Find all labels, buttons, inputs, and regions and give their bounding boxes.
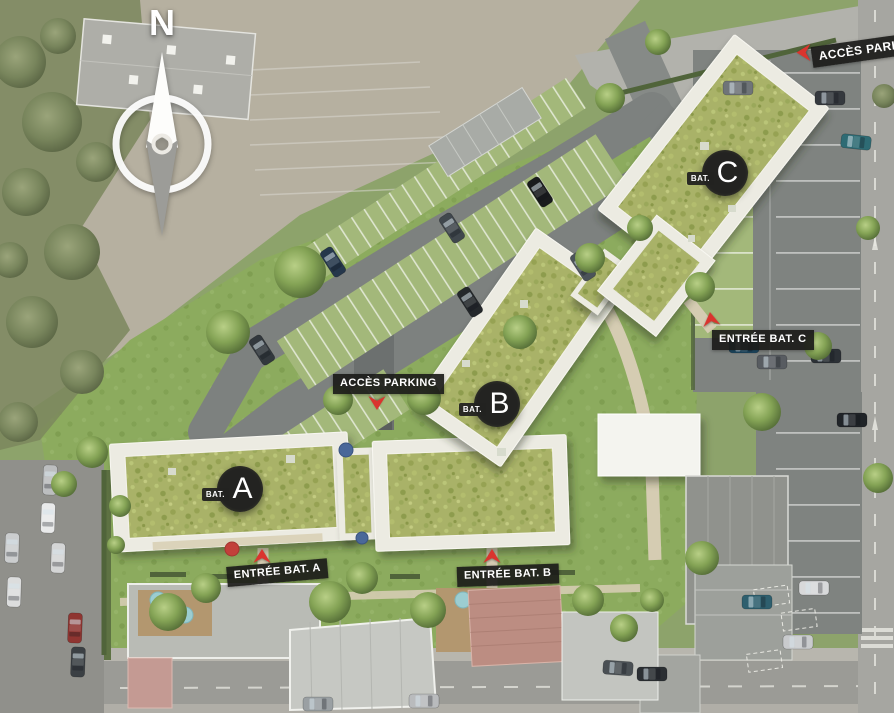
building-b-badge-letter: B [484,389,509,419]
building-a-badge-prefix: BAT. [202,488,229,501]
compass-rose-icon: N [110,6,214,238]
access-parking-label-center: ACCÈS PARKING [333,374,444,394]
building-b-badge: BAT. B [474,381,520,427]
building-c-badge-prefix: BAT. [687,172,714,185]
red-chevron-up-icon-entrance-b [483,549,501,564]
building-b-badge-prefix: BAT. [459,403,486,416]
building-c-badge: BAT. C [702,150,748,196]
entrance-building-b-label: ENTRÉE BAT. B [457,563,559,587]
building-a-badge: BAT. A [217,466,263,512]
red-chevron-up-icon-entrance-c [701,311,721,328]
red-chevron-down-icon [368,395,386,410]
compass-needle [110,6,214,238]
building-ab-link-roof [337,447,378,540]
entrance-building-c-label: ENTRÉE BAT. C [712,330,814,350]
red-chevron-left-icon [797,44,812,62]
red-chevron-up-icon-entrance-a [253,549,271,564]
building-a-badge-letter: A [227,474,252,504]
building-b-base-roof [372,435,570,552]
building-c-badge-letter: C [712,158,739,188]
aerial-site-plan: N ACCÈS PARKING ACCÈS PARKING ENTRÉE BAT… [0,0,894,713]
